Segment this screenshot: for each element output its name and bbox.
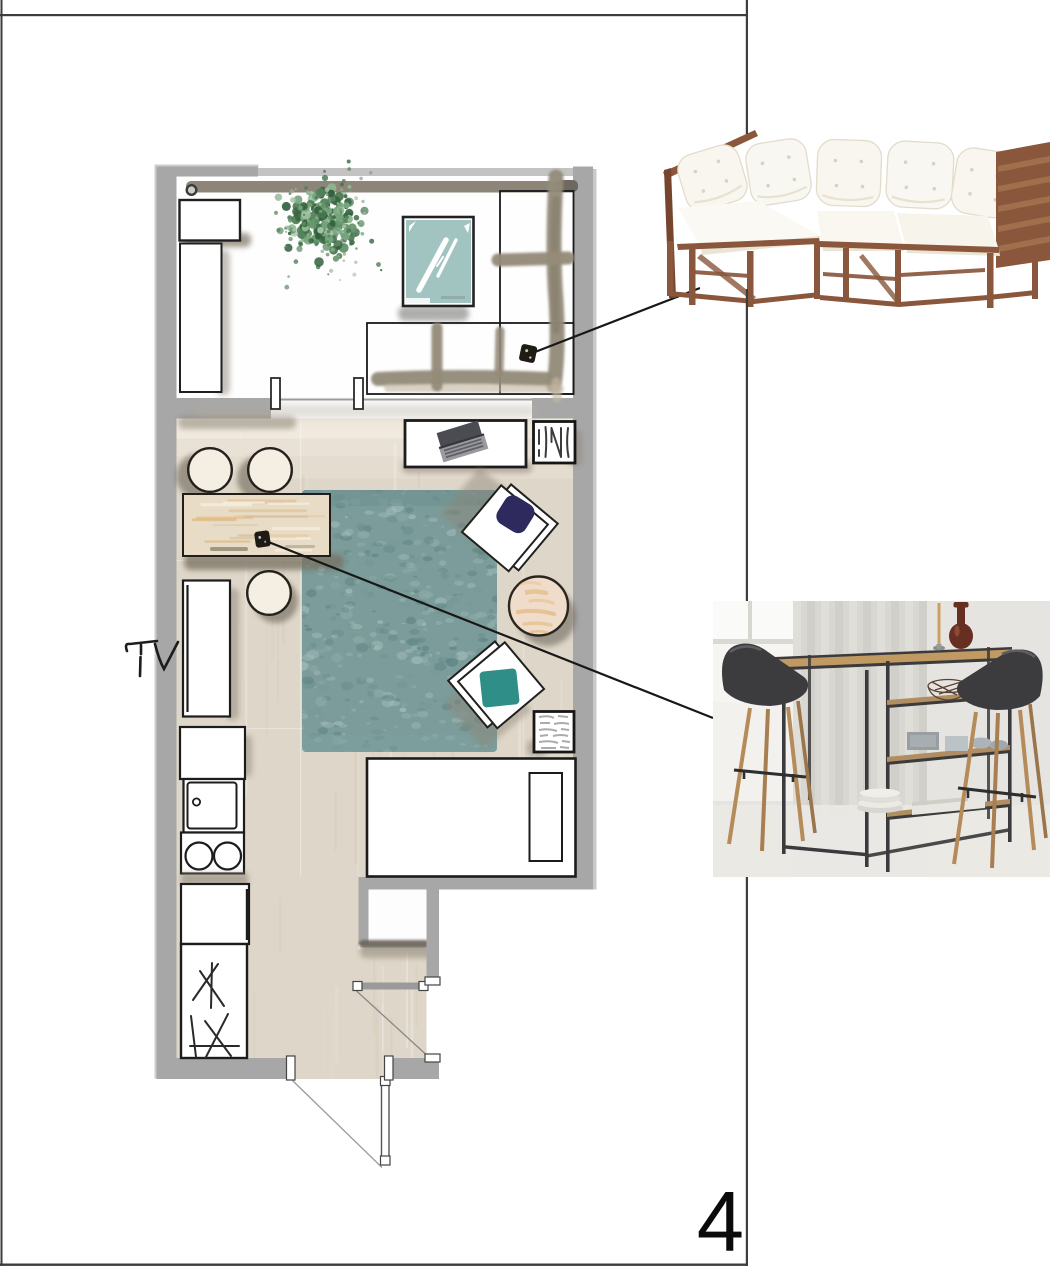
- svg-text:4: 4: [697, 1175, 744, 1270]
